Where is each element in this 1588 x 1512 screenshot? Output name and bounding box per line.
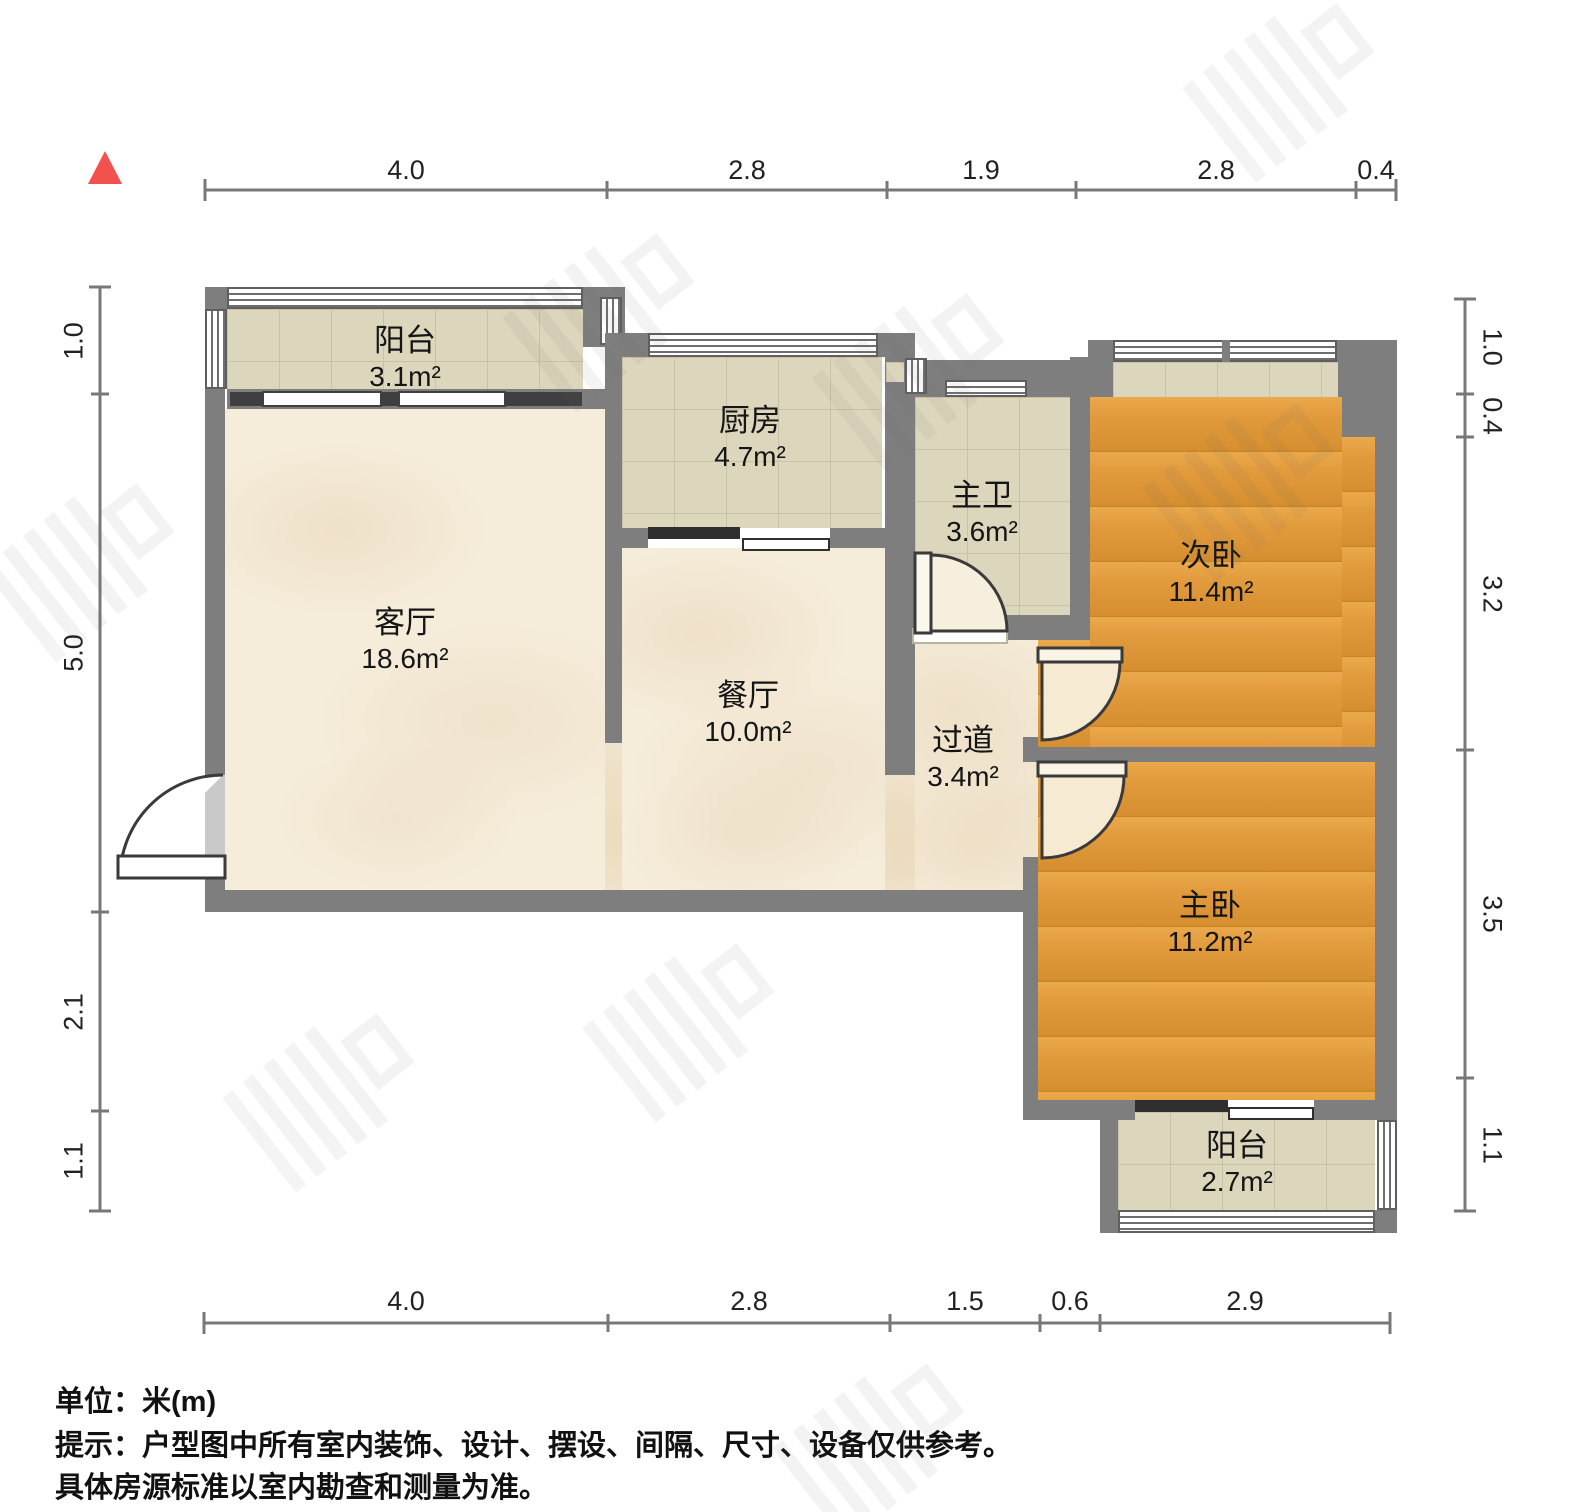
floorplan-canvas: 4.0 2.8 1.9 2.8 0.4 4.0 2.8 1.5 0.6 2.9 … (0, 0, 1588, 1512)
unit-note: 单位：米(m) (55, 1378, 216, 1420)
dim-right-2: 3.2 (1477, 575, 1508, 613)
dim-left-2: 2.1 (59, 993, 90, 1031)
room-name: 阳台 (369, 322, 441, 359)
bedroom-second-sill (1113, 362, 1338, 397)
sliding-door-panel (1135, 1100, 1215, 1112)
wall-segment (1088, 340, 1113, 362)
dim-bottom-1: 2.8 (730, 1286, 768, 1317)
window (1377, 1120, 1397, 1210)
wall-segment (1070, 357, 1090, 640)
room-label-balcony-bottom: 阳台 2.7m² (1201, 1127, 1273, 1200)
watermark (582, 917, 798, 1122)
dim-top-0: 4.0 (387, 155, 425, 186)
window (205, 309, 227, 389)
watermark (222, 987, 438, 1192)
window (648, 333, 878, 357)
room-name: 主卫 (946, 477, 1018, 514)
wall-segment (1314, 1100, 1397, 1120)
tile-patch (886, 362, 904, 382)
dim-bottom-2: 1.5 (946, 1286, 984, 1317)
wall-segment (205, 890, 1038, 912)
room-label-bedroom-master: 主卧 11.2m² (1167, 887, 1252, 960)
room-area: 18.6m² (361, 641, 448, 677)
bedroom-second-floor-sw (1038, 640, 1090, 747)
wall-segment (1088, 362, 1113, 397)
entry-door-recess (205, 775, 225, 878)
sliding-door-panel (1228, 1107, 1314, 1120)
room-area: 3.1m² (369, 359, 441, 395)
room-area: 3.4m² (927, 759, 999, 795)
room-name: 主卧 (1167, 887, 1252, 924)
wall-segment (1100, 1210, 1118, 1233)
dim-right-4: 1.1 (1477, 1126, 1508, 1164)
wall-segment (1375, 1210, 1397, 1233)
room-area: 2.7m² (1201, 1164, 1273, 1200)
room-area: 3.6m² (946, 514, 1018, 550)
room-name: 次卧 (1168, 537, 1253, 574)
window-mullion (1222, 340, 1230, 362)
room-label-dining: 餐厅 10.0m² (704, 677, 791, 750)
wall-segment (205, 287, 227, 309)
dim-left-3: 1.1 (59, 1142, 90, 1180)
wall-segment (1338, 362, 1375, 397)
wall-segment (1342, 397, 1375, 437)
room-area: 11.4m² (1168, 574, 1253, 610)
room-name: 阳台 (1201, 1127, 1273, 1164)
wall-segment (1375, 340, 1397, 1100)
window (945, 380, 1027, 397)
wall-segment (622, 528, 648, 548)
room-name: 厨房 (714, 402, 786, 439)
north-arrow-icon (88, 151, 122, 184)
dim-right-0: 1.0 (1477, 328, 1508, 366)
wall-segment (885, 357, 915, 775)
wall-segment (1038, 747, 1397, 762)
disclaimer-line2: 具体房源标准以室内勘查和测量为准。 (55, 1464, 548, 1506)
wall-segment (605, 333, 622, 743)
bedroom-second-floor-e (1342, 437, 1375, 747)
dim-top-3: 2.8 (1197, 155, 1235, 186)
sliding-door-panel (1215, 1100, 1228, 1112)
dim-top-1: 2.8 (728, 155, 766, 186)
room-label-hallway: 过道 3.4m² (927, 722, 999, 795)
dining-hall-gap-floor (885, 775, 915, 890)
room-area: 4.7m² (714, 439, 786, 475)
wall-segment (205, 389, 225, 775)
window (905, 358, 927, 394)
room-area: 11.2m² (1167, 924, 1252, 960)
room-name: 餐厅 (704, 677, 791, 714)
sliding-door-panel (742, 538, 830, 551)
wall-segment (1023, 737, 1038, 762)
wall-segment (1023, 857, 1038, 1100)
dim-left-1: 5.0 (59, 634, 90, 672)
window (227, 287, 583, 309)
disclaimer-line1: 提示：户型图中所有室内装饰、设计、摆设、间隔、尺寸、设备仅供参考。 (55, 1422, 1012, 1464)
dim-bottom-4: 2.9 (1226, 1286, 1264, 1317)
room-label-living: 客厅 18.6m² (361, 604, 448, 677)
sliding-door-panel (648, 527, 740, 539)
dim-left-0: 1.0 (59, 322, 90, 360)
wall-segment (1100, 1112, 1118, 1210)
living-dining-gap-floor (605, 743, 622, 890)
wall-segment (1023, 1100, 1135, 1120)
dim-top-4: 0.4 (1357, 155, 1395, 186)
room-label-bedroom-second: 次卧 11.4m² (1168, 537, 1253, 610)
room-label-balcony-top: 阳台 3.1m² (369, 322, 441, 395)
room-label-kitchen: 厨房 4.7m² (714, 402, 786, 475)
dim-bottom-0: 4.0 (387, 1286, 425, 1317)
window (262, 391, 382, 407)
dim-right-1: 0.4 (1477, 397, 1508, 435)
wall-segment (1337, 340, 1375, 362)
dim-bottom-3: 0.6 (1051, 1286, 1089, 1317)
window (1118, 1210, 1375, 1233)
room-area: 10.0m² (704, 714, 791, 750)
dim-top-2: 1.9 (962, 155, 1000, 186)
room-label-bathroom: 主卫 3.6m² (946, 477, 1018, 550)
room-name: 客厅 (361, 604, 448, 641)
wall-segment (830, 528, 885, 548)
watermark (0, 457, 198, 662)
room-name: 过道 (927, 722, 999, 759)
dim-right-3: 3.5 (1477, 895, 1508, 933)
wall-segment (878, 333, 915, 357)
wall-segment (622, 333, 648, 357)
